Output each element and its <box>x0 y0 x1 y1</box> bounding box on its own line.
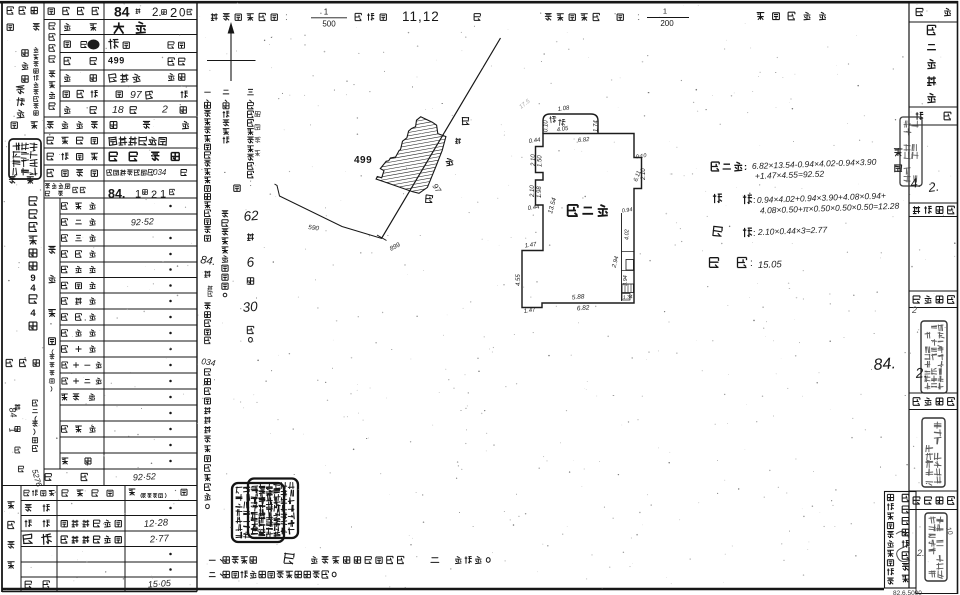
svg-text:2.: 2. <box>152 7 162 19</box>
svg-text:84.: 84. <box>200 254 217 268</box>
svg-text:1.08: 1.08 <box>557 105 570 113</box>
svg-text:0: 0 <box>179 8 185 20</box>
svg-text:84.: 84. <box>873 355 897 374</box>
svg-text::: : <box>750 258 753 269</box>
svg-text:0.44: 0.44 <box>528 137 541 145</box>
svg-text:4.55: 4.55 <box>516 274 522 286</box>
svg-text:1.47: 1.47 <box>523 307 536 315</box>
svg-text:2.: 2. <box>914 364 928 381</box>
svg-text:0.10: 0.10 <box>635 153 647 161</box>
svg-text:6.82: 6.82 <box>577 304 591 312</box>
svg-text:499: 499 <box>354 155 372 166</box>
svg-text:2.10: 2.10 <box>530 185 536 198</box>
svg-text:0.94: 0.94 <box>621 207 632 214</box>
svg-text::: : <box>744 162 747 172</box>
svg-text:2.: 2. <box>926 179 940 196</box>
svg-text:2.10: 2.10 <box>531 154 537 167</box>
svg-text:92·52: 92·52 <box>133 471 157 482</box>
svg-text:1.74: 1.74 <box>594 120 600 132</box>
svg-text:0.10: 0.10 <box>544 120 550 132</box>
svg-text:2: 2 <box>151 189 157 201</box>
svg-text:1.98: 1.98 <box>537 186 543 198</box>
svg-text:5.88: 5.88 <box>572 293 586 301</box>
svg-text:2·77: 2·77 <box>148 533 169 545</box>
svg-text:4: 4 <box>30 283 36 294</box>
svg-text:18: 18 <box>112 104 124 116</box>
svg-text:1.34: 1.34 <box>623 294 633 301</box>
svg-text::: : <box>753 228 756 238</box>
svg-text:899: 899 <box>389 241 402 252</box>
svg-text:15·05: 15·05 <box>147 578 172 590</box>
svg-text:11,12: 11,12 <box>402 9 440 24</box>
svg-text:499: 499 <box>108 56 125 66</box>
svg-text:4.: 4. <box>909 175 922 191</box>
svg-text:1.50: 1.50 <box>538 155 544 167</box>
svg-text:2: 2 <box>911 305 917 315</box>
svg-text:2: 2 <box>161 104 168 116</box>
svg-text:1: 1 <box>663 7 667 16</box>
svg-text:2.94: 2.94 <box>611 255 620 269</box>
svg-text:1.47: 1.47 <box>524 242 537 250</box>
svg-text:30: 30 <box>242 299 259 315</box>
svg-text:4: 4 <box>30 308 36 319</box>
svg-text:97: 97 <box>430 182 443 195</box>
svg-text:200: 200 <box>660 19 674 28</box>
svg-text:3.94: 3.94 <box>623 275 629 286</box>
svg-text:62: 62 <box>243 208 260 224</box>
svg-text:6.82: 6.82 <box>578 137 591 144</box>
svg-text:590: 590 <box>308 224 320 232</box>
svg-text::: : <box>753 195 756 205</box>
svg-text:500: 500 <box>322 20 336 29</box>
svg-text:10: 10 <box>944 526 953 536</box>
svg-text:2.10×0.44×3=2.77: 2.10×0.44×3=2.77 <box>757 225 828 237</box>
svg-text:82.6.5000: 82.6.5000 <box>893 590 922 595</box>
svg-text:13.54: 13.54 <box>547 197 558 215</box>
svg-text:84: 84 <box>114 4 130 20</box>
svg-text:84.: 84. <box>108 187 125 201</box>
svg-text:15.05: 15.05 <box>758 259 783 271</box>
svg-text:17.5: 17.5 <box>519 98 532 110</box>
svg-text:034: 034 <box>153 168 167 177</box>
svg-text:1: 1 <box>160 189 166 201</box>
svg-text:1: 1 <box>324 8 329 17</box>
svg-text:4.05: 4.05 <box>556 126 569 134</box>
svg-text:12·28: 12·28 <box>143 517 169 530</box>
svg-text:2.: 2. <box>916 548 925 558</box>
svg-text:6: 6 <box>246 254 255 270</box>
svg-text:0.44: 0.44 <box>527 204 540 212</box>
svg-text:92·52: 92·52 <box>131 216 155 227</box>
svg-text:1: 1 <box>135 189 141 201</box>
svg-text:+1.47×4.55=92.52: +1.47×4.55=92.52 <box>755 169 825 181</box>
svg-text:97: 97 <box>130 89 143 101</box>
svg-text:034: 034 <box>201 356 217 368</box>
svg-text:2: 2 <box>170 5 177 20</box>
svg-text:4.02: 4.02 <box>625 229 631 240</box>
